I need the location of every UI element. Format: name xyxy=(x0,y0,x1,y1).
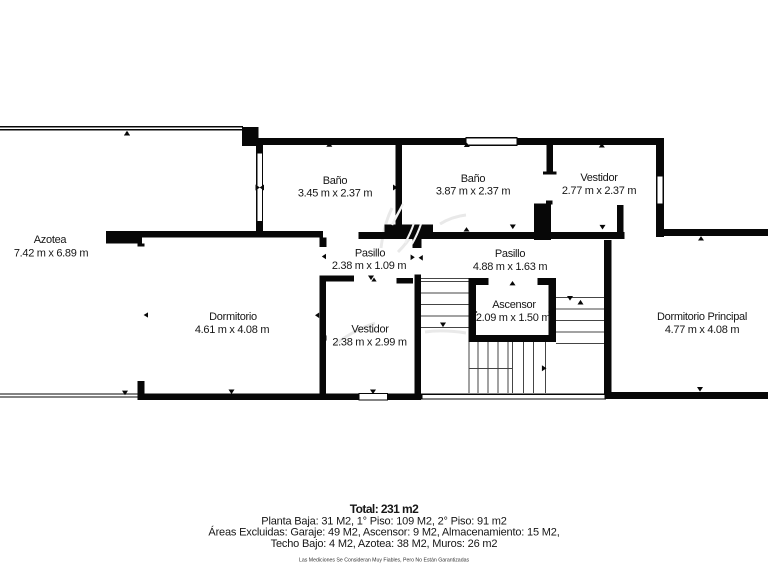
svg-text:Las Mediciones Se Consideran M: Las Mediciones Se Consideran Muy Fiables… xyxy=(299,558,470,564)
svg-text:3.45 m x 2.37 m: 3.45 m x 2.37 m xyxy=(298,188,373,200)
svg-text:4.88 m x 1.63 m: 4.88 m x 1.63 m xyxy=(473,261,548,273)
svg-text:Baño: Baño xyxy=(323,175,348,187)
svg-text:2.77 m x 2.37 m: 2.77 m x 2.37 m xyxy=(562,185,637,197)
svg-text:2.09 m x 1.50 m: 2.09 m x 1.50 m xyxy=(476,312,551,324)
svg-text:Azotea: Azotea xyxy=(34,234,68,246)
svg-text:Baño: Baño xyxy=(461,173,486,185)
svg-text:Ascensor: Ascensor xyxy=(492,299,536,311)
svg-text:7.42 m x 6.89 m: 7.42 m x 6.89 m xyxy=(14,248,89,260)
svg-text:Áreas Excluidas: Garaje: 49 M2: Áreas Excluidas: Garaje: 49 M2, Ascensor… xyxy=(208,526,559,539)
svg-text:Dormitorio Principal: Dormitorio Principal xyxy=(657,311,747,323)
svg-text:4.61 m x 4.08 m: 4.61 m x 4.08 m xyxy=(195,324,270,336)
svg-text:Techo Bajo: 4 M2, Azotea: 38 M: Techo Bajo: 4 M2, Azotea: 38 M2, Muros: … xyxy=(271,538,498,550)
svg-text:Pasillo: Pasillo xyxy=(495,248,525,260)
svg-text:3.87 m x 2.37 m: 3.87 m x 2.37 m xyxy=(436,186,511,198)
svg-text:4.77 m x 4.08 m: 4.77 m x 4.08 m xyxy=(665,324,740,336)
svg-text:2.38 m x 1.09 m: 2.38 m x 1.09 m xyxy=(332,260,407,272)
svg-text:2.38 m x 2.99 m: 2.38 m x 2.99 m xyxy=(332,337,407,349)
svg-text:Pasillo: Pasillo xyxy=(355,248,385,260)
svg-text:Total: 231 m2: Total: 231 m2 xyxy=(350,502,419,516)
svg-text:Vestidor: Vestidor xyxy=(351,324,389,336)
svg-text:Vestidor: Vestidor xyxy=(580,172,618,184)
svg-text:Dormitorio: Dormitorio xyxy=(209,311,257,323)
